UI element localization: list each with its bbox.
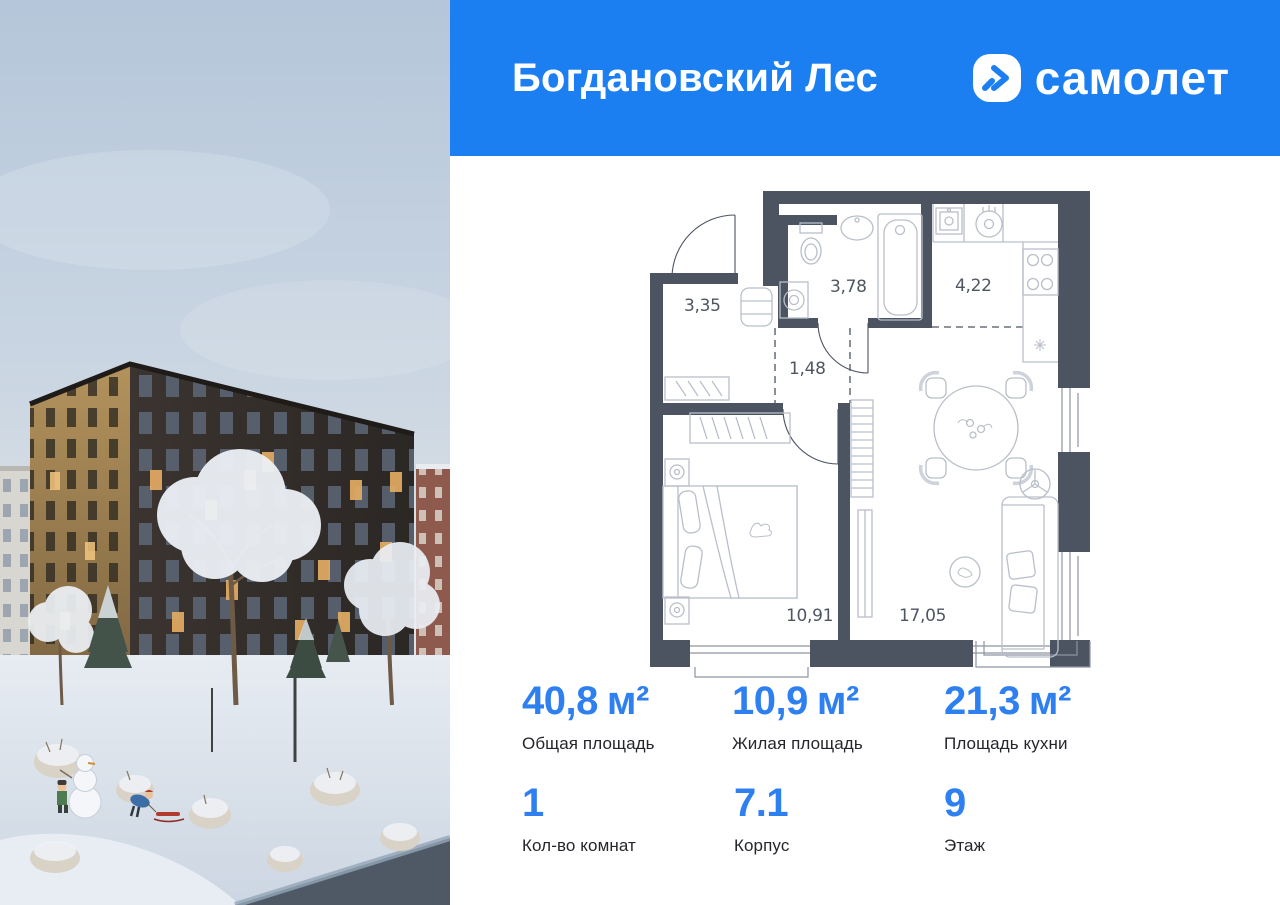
room-label-livingroom: 17,05 xyxy=(899,606,946,626)
stat-total-area-label: Общая площадь xyxy=(522,734,655,754)
furniture xyxy=(663,204,1058,657)
listing-card: Богдановский Лес самолет xyxy=(0,0,1280,905)
stat-kitchen-area-label: Площадь кухни xyxy=(944,734,1071,754)
brand-name: самолет xyxy=(1035,55,1230,101)
info-panel: Богдановский Лес самолет xyxy=(450,0,1280,905)
stat-building-label: Корпус xyxy=(734,836,789,856)
floor-plan: 3,35 3,78 4,22 1,48 10,91 17,05 xyxy=(450,156,1280,716)
winter-scene-illustration xyxy=(0,0,450,905)
room-label-hallway: 3,35 xyxy=(684,296,721,316)
project-title: Богдановский Лес xyxy=(512,56,878,101)
stat-rooms: 1 Кол-во комнат xyxy=(522,783,636,856)
stat-floor-value: 9 xyxy=(944,783,985,823)
stat-building: 7.1 Корпус xyxy=(734,783,789,856)
stat-living-area-value: 10,9м² xyxy=(732,681,863,721)
stat-total-area-value: 40,8м² xyxy=(522,681,655,721)
stat-floor-label: Этаж xyxy=(944,836,985,856)
stat-living-area: 10,9м² Жилая площадь xyxy=(732,681,863,754)
stat-rooms-label: Кол-во комнат xyxy=(522,836,636,856)
stat-kitchen-area: 21,3м² Площадь кухни xyxy=(944,681,1071,754)
samolet-logo-icon xyxy=(973,54,1021,102)
stat-total-area: 40,8м² Общая площадь xyxy=(522,681,655,754)
stat-rooms-value: 1 xyxy=(522,783,636,823)
stat-building-value: 7.1 xyxy=(734,783,789,823)
room-label-bathroom: 3,78 xyxy=(830,277,867,297)
building-photo xyxy=(0,0,450,905)
stat-floor: 9 Этаж xyxy=(944,783,985,856)
brand-logo: самолет xyxy=(973,54,1230,102)
room-label-corridor: 1,48 xyxy=(789,359,826,379)
room-label-bedroom: 10,91 xyxy=(786,606,833,626)
header: Богдановский Лес самолет xyxy=(450,0,1280,156)
stat-kitchen-area-value: 21,3м² xyxy=(944,681,1071,721)
stat-living-area-label: Жилая площадь xyxy=(732,734,863,754)
floor-plan-drawing: 3,35 3,78 4,22 1,48 10,91 17,05 xyxy=(450,156,1280,716)
room-label-kitchen: 4,22 xyxy=(955,276,992,296)
